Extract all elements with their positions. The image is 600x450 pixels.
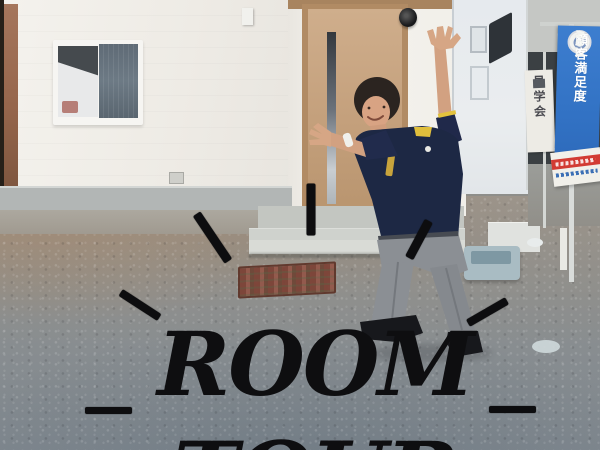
- title-room: ROOM: [150, 320, 480, 408]
- burst-dash-left: [85, 407, 132, 414]
- burst-dash-top: [307, 184, 316, 236]
- video-thumbnail: 見学会 顧客満足度 No.1: [0, 0, 600, 450]
- burst-dash-right: [489, 406, 536, 413]
- title-tour: TOUR: [150, 430, 480, 450]
